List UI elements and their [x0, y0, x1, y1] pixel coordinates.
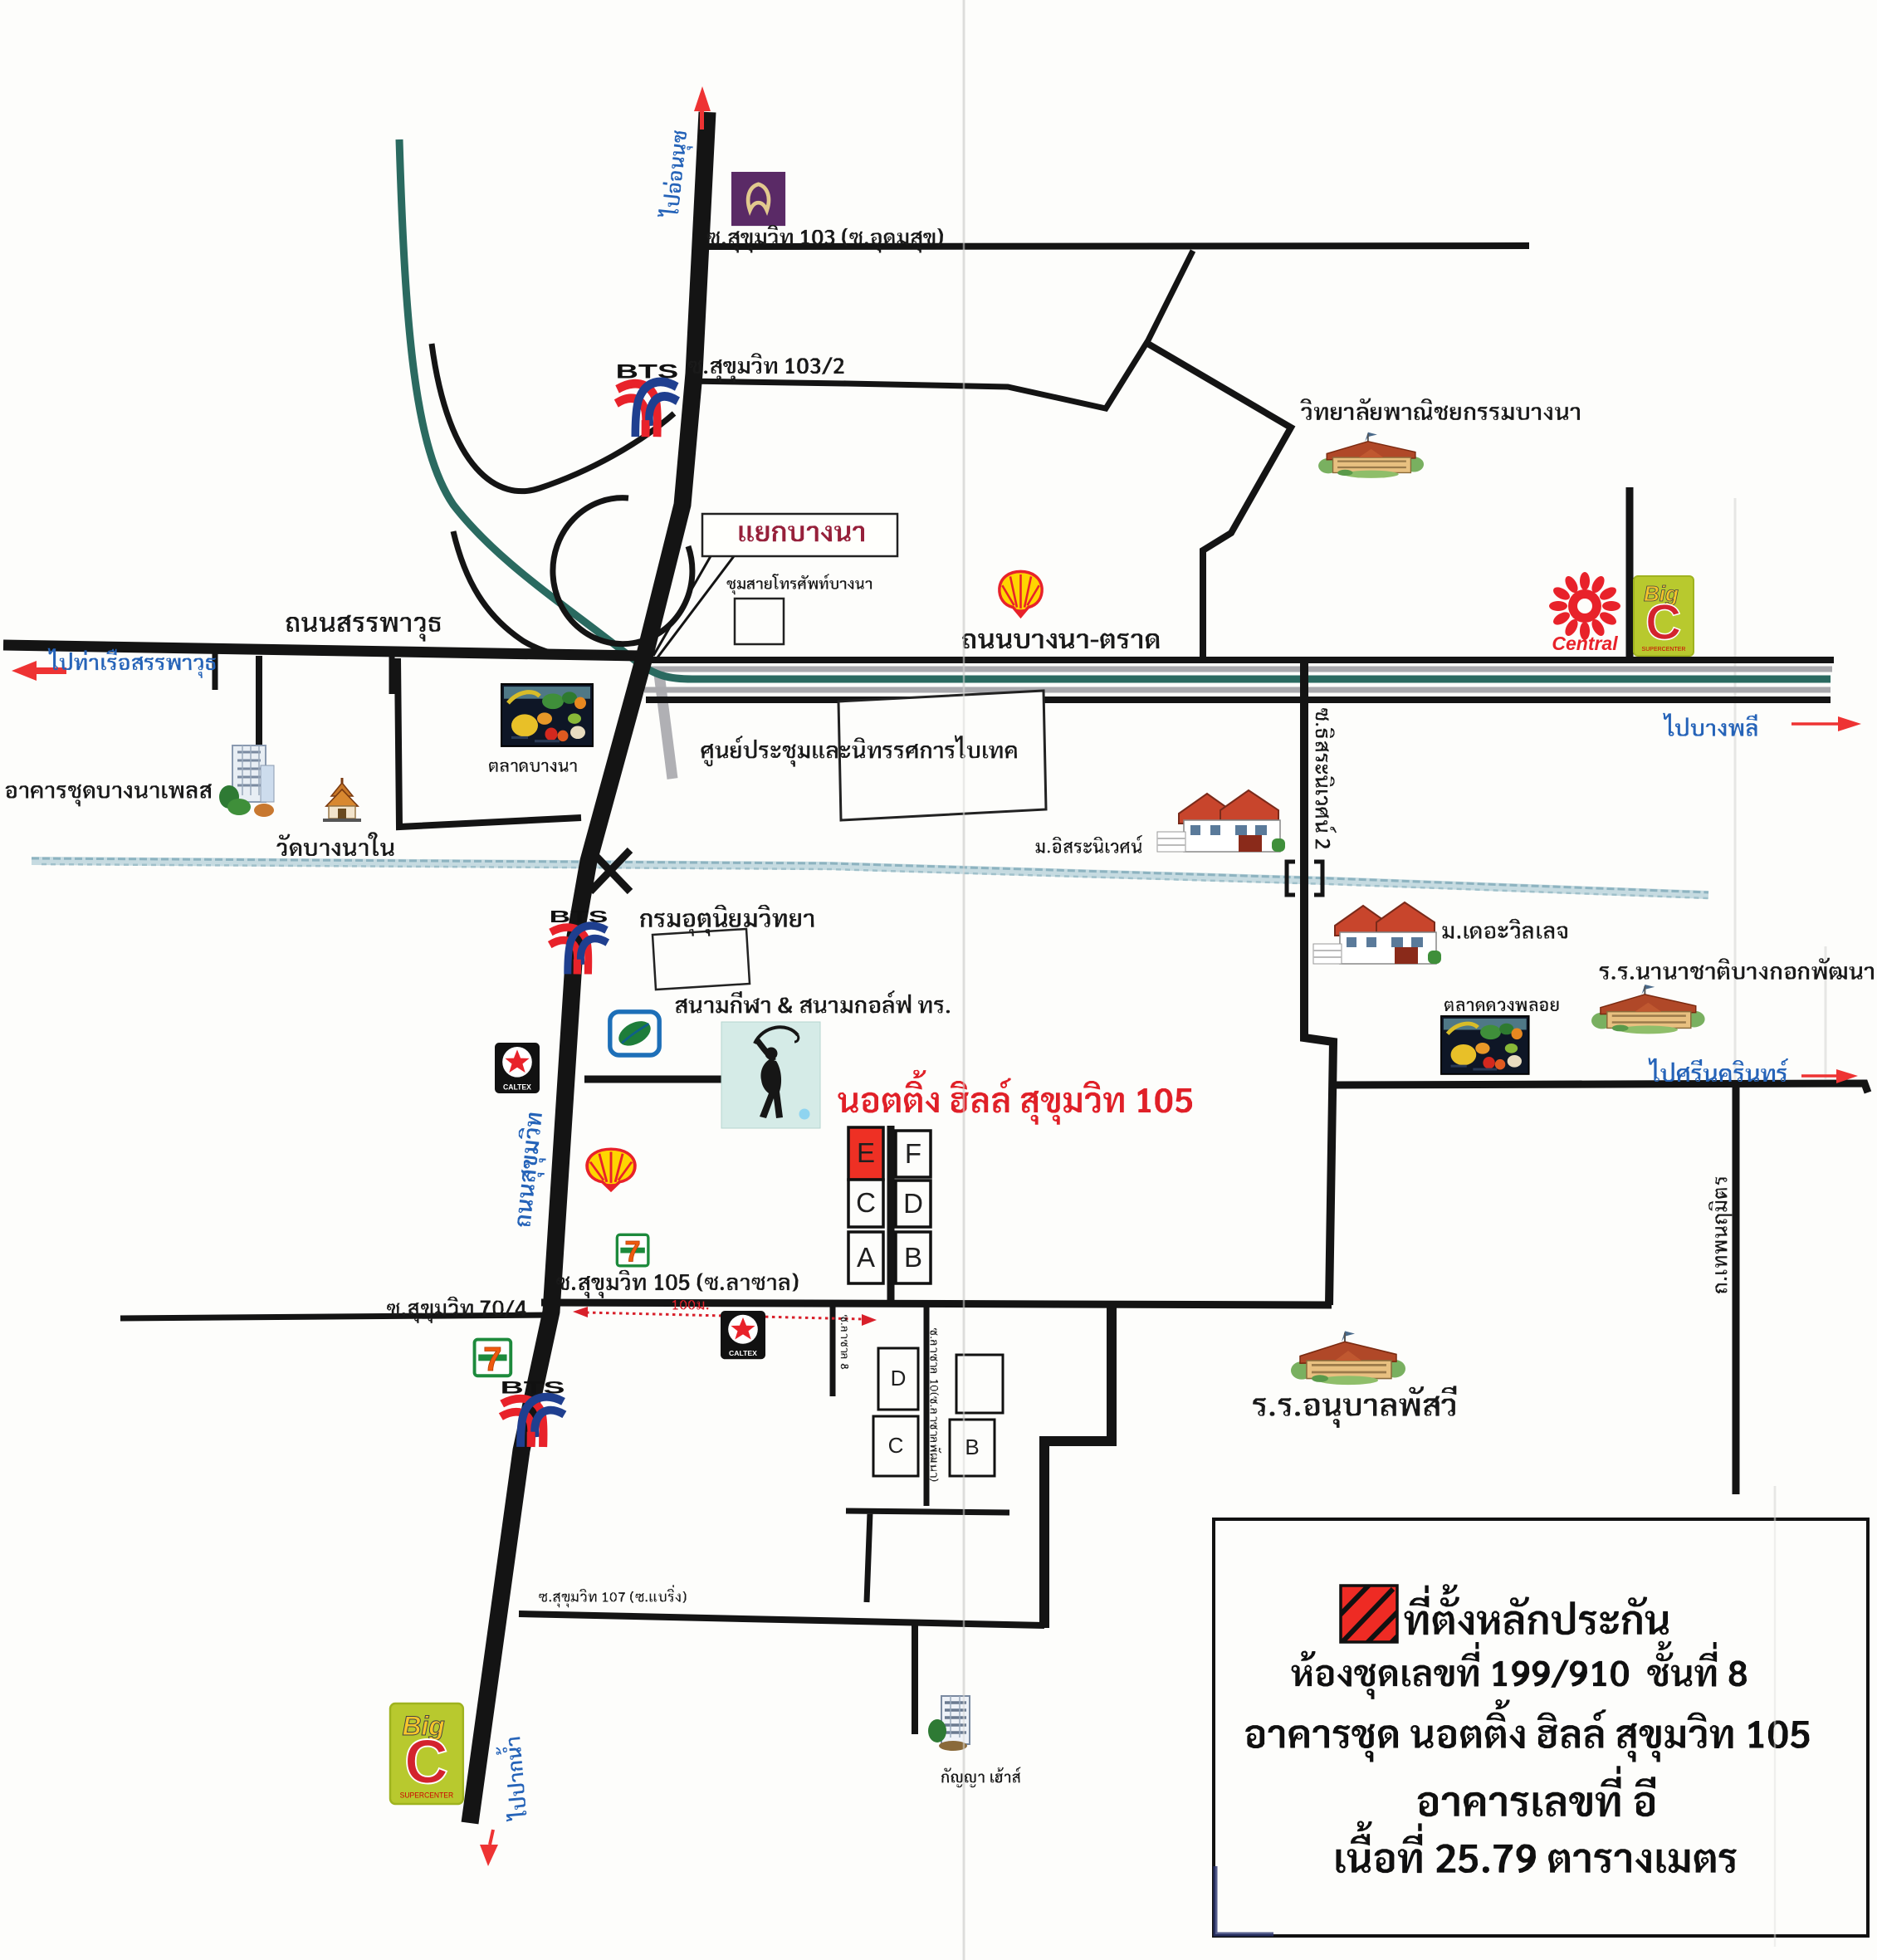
svg-text:E: E [857, 1137, 875, 1168]
svg-text:C: C [404, 1727, 448, 1796]
svg-text:B: B [965, 1435, 979, 1459]
svg-text:SUPERCENTER: SUPERCENTER [1642, 647, 1686, 653]
svg-text:7: 7 [624, 1236, 640, 1268]
svg-text:Central: Central [1552, 633, 1618, 654]
svg-text:B: B [904, 1242, 922, 1273]
svg-text:CALTEX: CALTEX [729, 1349, 757, 1357]
svg-text:D: D [891, 1366, 907, 1391]
svg-text:A: A [857, 1242, 875, 1273]
svg-text:CALTEX: CALTEX [503, 1083, 531, 1092]
svg-text:C: C [856, 1187, 876, 1218]
svg-text:F: F [905, 1138, 921, 1169]
svg-text:C: C [888, 1433, 904, 1458]
svg-text:C: C [1645, 594, 1681, 650]
svg-text:7: 7 [483, 1340, 502, 1378]
svg-text:SUPERCENTER: SUPERCENTER [400, 1791, 453, 1799]
svg-text:D: D [903, 1188, 923, 1219]
